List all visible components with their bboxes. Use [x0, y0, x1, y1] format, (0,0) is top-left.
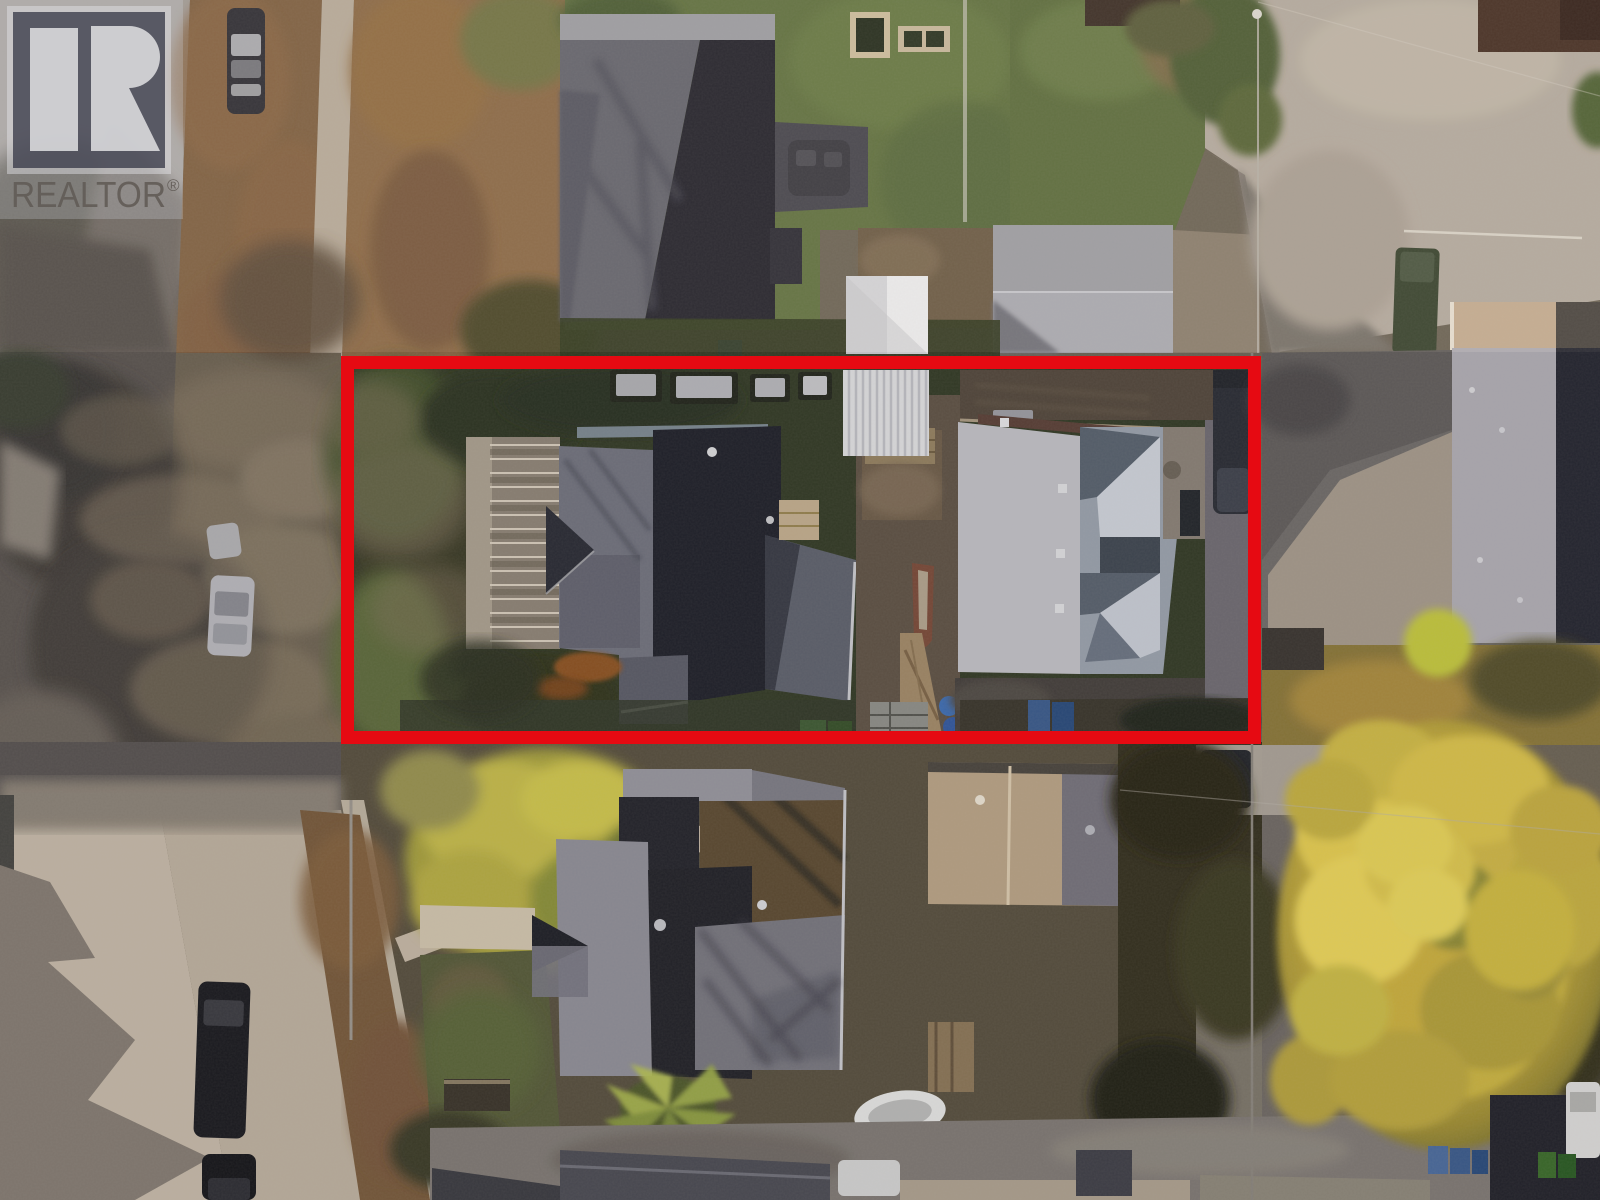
- svg-text:®: ®: [167, 176, 180, 195]
- svg-text:REALTOR: REALTOR: [11, 174, 166, 215]
